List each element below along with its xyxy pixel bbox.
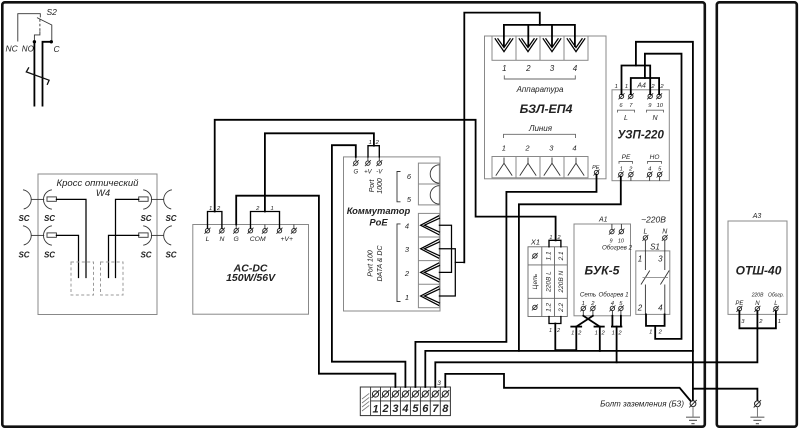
svg-text:Port: Port xyxy=(369,179,376,193)
svg-text:1: 1 xyxy=(638,255,642,264)
svg-text:1: 1 xyxy=(369,140,372,146)
svg-text:3: 3 xyxy=(392,403,398,415)
svg-text:SC: SC xyxy=(140,214,151,223)
svg-text:SC: SC xyxy=(165,214,176,223)
svg-text:10: 10 xyxy=(657,103,664,109)
svg-text:~220В: ~220В xyxy=(641,215,666,225)
svg-text:L: L xyxy=(643,229,647,236)
svg-text:L: L xyxy=(774,301,777,307)
svg-text:Port 100: Port 100 xyxy=(368,250,375,277)
svg-text:Аппаратура: Аппаратура xyxy=(516,85,564,94)
svg-text:4: 4 xyxy=(658,304,663,313)
svg-text:220В N: 220В N xyxy=(558,270,565,293)
svg-text:G: G xyxy=(353,170,358,176)
svg-text:+V+: +V+ xyxy=(280,236,293,243)
svg-text:1: 1 xyxy=(209,206,212,212)
svg-text:2: 2 xyxy=(637,304,643,313)
svg-text:1: 1 xyxy=(405,293,409,302)
svg-text:1: 1 xyxy=(502,144,506,153)
svg-text:4: 4 xyxy=(405,222,409,231)
svg-text:5: 5 xyxy=(412,403,419,415)
svg-text:1: 1 xyxy=(615,84,618,90)
svg-text:1: 1 xyxy=(649,329,652,335)
svg-text:DATA & DC: DATA & DC xyxy=(377,245,384,282)
svg-text:Обогр.: Обогр. xyxy=(768,293,784,299)
svg-text:4: 4 xyxy=(648,166,651,172)
svg-text:W4: W4 xyxy=(96,188,110,199)
svg-text:2: 2 xyxy=(524,144,530,153)
svg-text:PoE: PoE xyxy=(369,217,388,228)
svg-text:А4: А4 xyxy=(636,83,646,90)
svg-text:C: C xyxy=(54,44,61,54)
svg-text:Линия: Линия xyxy=(528,124,553,133)
svg-text:+V: +V xyxy=(364,170,373,176)
svg-text:Цепь: Цепь xyxy=(532,273,539,289)
svg-text:X1: X1 xyxy=(530,238,540,247)
svg-text:А3: А3 xyxy=(752,213,762,220)
svg-text:N: N xyxy=(219,236,224,243)
svg-text:150W/56V: 150W/56V xyxy=(226,272,276,284)
svg-text:2: 2 xyxy=(404,269,410,278)
svg-text:3: 3 xyxy=(658,255,663,264)
svg-text:1.1: 1.1 xyxy=(546,251,553,260)
svg-text:PE: PE xyxy=(735,301,744,307)
svg-text:SC: SC xyxy=(18,214,29,223)
svg-text:БУК-5: БУК-5 xyxy=(585,264,620,278)
svg-text:L: L xyxy=(206,236,210,243)
svg-text:2: 2 xyxy=(556,235,560,241)
svg-text:1: 1 xyxy=(502,64,506,73)
svg-text:2.1: 2.1 xyxy=(558,251,565,261)
svg-text:Сеть: Сеть xyxy=(580,291,596,298)
svg-text:3: 3 xyxy=(550,64,555,73)
svg-text:G: G xyxy=(234,236,239,243)
svg-text:1: 1 xyxy=(620,166,623,172)
svg-text:SC: SC xyxy=(44,250,55,259)
svg-text:А1: А1 xyxy=(598,217,608,224)
svg-text:1000: 1000 xyxy=(377,178,384,194)
svg-text:S2: S2 xyxy=(47,7,58,17)
svg-text:НО: НО xyxy=(650,154,660,161)
svg-text:L: L xyxy=(624,115,628,122)
svg-text:-V: -V xyxy=(376,170,383,176)
svg-text:2.2: 2.2 xyxy=(558,303,565,313)
svg-text:SC: SC xyxy=(140,250,151,259)
svg-text:УЗП-220: УЗП-220 xyxy=(618,130,665,142)
svg-text:6: 6 xyxy=(422,403,429,415)
svg-text:SC: SC xyxy=(44,214,55,223)
svg-text:NO: NO xyxy=(22,45,34,54)
svg-text:БЗЛ-ЕП4: БЗЛ-ЕП4 xyxy=(520,102,573,116)
svg-text:7: 7 xyxy=(432,403,439,415)
svg-text:4: 4 xyxy=(572,144,576,153)
svg-text:1: 1 xyxy=(595,330,598,336)
svg-text:1: 1 xyxy=(372,404,378,416)
svg-text:8: 8 xyxy=(442,403,449,415)
svg-text:220В: 220В xyxy=(751,293,764,299)
svg-text:Коммутатор: Коммутатор xyxy=(347,205,411,216)
svg-text:2: 2 xyxy=(525,64,531,73)
svg-text:N: N xyxy=(755,301,760,307)
svg-text:1: 1 xyxy=(549,328,552,334)
svg-text:ОТШ-40: ОТШ-40 xyxy=(736,263,782,277)
svg-text:S1: S1 xyxy=(650,243,660,252)
svg-text:1: 1 xyxy=(778,319,781,325)
svg-text:4: 4 xyxy=(573,64,578,73)
svg-text:4: 4 xyxy=(401,403,408,415)
svg-text:1: 1 xyxy=(549,235,552,241)
svg-text:SC: SC xyxy=(165,250,176,259)
svg-text:2: 2 xyxy=(381,403,388,415)
svg-text:COM: COM xyxy=(250,236,266,243)
svg-text:NC: NC xyxy=(6,44,19,54)
svg-text:Обогрев 2: Обогрев 2 xyxy=(602,244,633,251)
svg-text:PE: PE xyxy=(622,154,631,161)
svg-text:1: 1 xyxy=(625,84,628,90)
svg-text:1: 1 xyxy=(612,330,615,336)
svg-text:1: 1 xyxy=(571,330,574,336)
svg-text:2: 2 xyxy=(556,328,560,334)
svg-text:Обогрев 1: Обогрев 1 xyxy=(598,291,628,298)
svg-text:SC: SC xyxy=(18,250,29,259)
svg-text:1: 1 xyxy=(270,206,273,212)
svg-text:Болт заземления (БЗ): Болт заземления (БЗ) xyxy=(600,400,684,409)
svg-text:1.2: 1.2 xyxy=(546,303,553,312)
svg-text:3: 3 xyxy=(437,380,441,387)
svg-text:220В L: 220В L xyxy=(546,271,553,293)
